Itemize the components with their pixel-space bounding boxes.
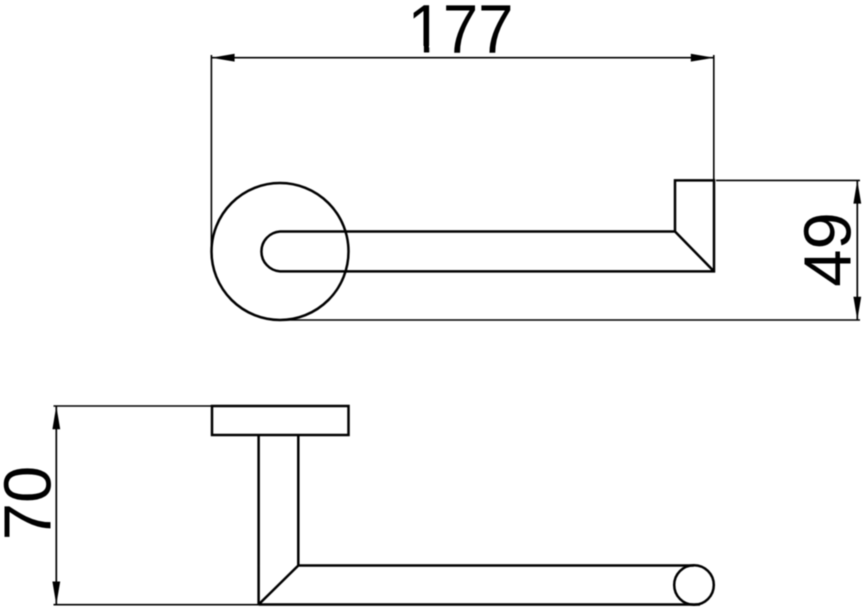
svg-text:177: 177 bbox=[408, 0, 514, 68]
svg-text:49: 49 bbox=[791, 212, 864, 287]
svg-text:70: 70 bbox=[0, 466, 66, 541]
